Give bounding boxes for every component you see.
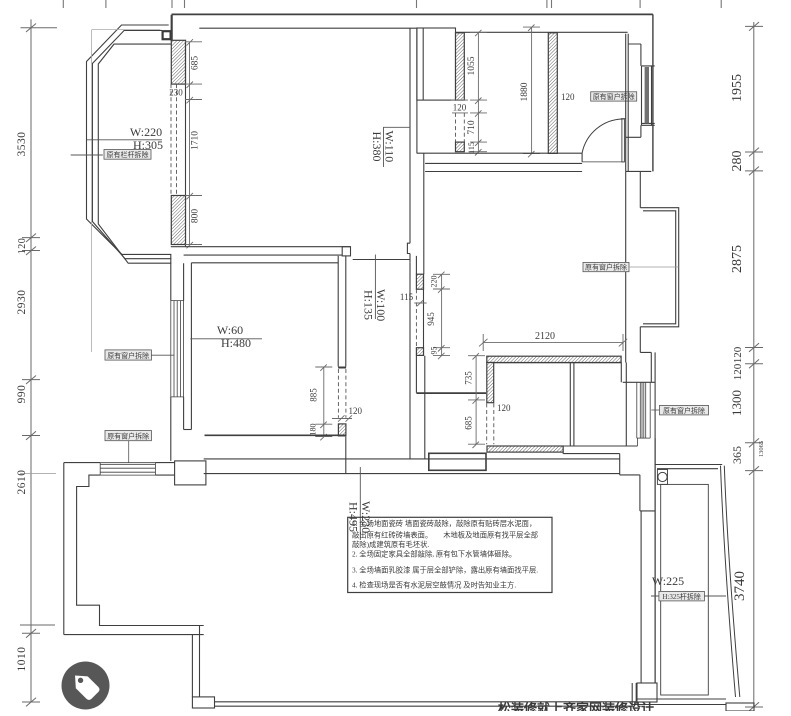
svg-text:800: 800 xyxy=(191,209,201,224)
svg-text:1055: 1055 xyxy=(467,56,477,75)
svg-text:120: 120 xyxy=(453,103,467,113)
svg-text:115: 115 xyxy=(400,292,414,302)
svg-text:H:380: H:380 xyxy=(370,132,384,162)
svg-text:120: 120 xyxy=(732,346,744,363)
svg-text:885: 885 xyxy=(309,388,319,402)
svg-text:H:325杆拆除: H:325杆拆除 xyxy=(662,592,701,601)
svg-text:365: 365 xyxy=(730,446,744,464)
svg-text:2930: 2930 xyxy=(16,290,28,315)
svg-text:1710: 1710 xyxy=(191,131,201,150)
svg-text:2. 全场固定家具全部敲除, 原有包下水管墙体砸除。: 2. 全场固定家具全部敲除, 原有包下水管墙体砸除。 xyxy=(352,550,516,559)
svg-text:敲除)成建筑原有毛坯状.: 敲除)成建筑原有毛坯状. xyxy=(352,540,429,549)
svg-text:220: 220 xyxy=(430,276,439,288)
svg-text:120: 120 xyxy=(732,363,744,380)
svg-text:735: 735 xyxy=(464,371,474,385)
svg-text:原有窗户拆除: 原有窗户拆除 xyxy=(107,431,149,440)
svg-text:原有窗户拆除: 原有窗户拆除 xyxy=(663,406,705,415)
svg-text:990: 990 xyxy=(16,385,28,404)
svg-text:H:480: H:480 xyxy=(221,336,251,350)
svg-text:280: 280 xyxy=(730,151,745,172)
svg-text:4. 检查现场是否有水泥层空鼓情况 及时告知业主方.: 4. 检查现场是否有水泥层空鼓情况 及时告知业主方. xyxy=(352,581,516,590)
svg-text:230: 230 xyxy=(169,88,183,98)
svg-text:W:220: W:220 xyxy=(130,125,162,139)
svg-text:120: 120 xyxy=(561,92,575,102)
svg-text:685: 685 xyxy=(191,56,201,71)
svg-text:180: 180 xyxy=(309,424,318,436)
svg-text:710: 710 xyxy=(467,120,477,135)
svg-text:2610: 2610 xyxy=(16,470,28,495)
svg-text:13065: 13065 xyxy=(758,441,765,457)
svg-text:120: 120 xyxy=(349,406,363,416)
svg-text:原有栏杆拆除: 原有栏杆拆除 xyxy=(107,150,149,159)
svg-text:2120: 2120 xyxy=(535,331,555,342)
svg-text:W:60: W:60 xyxy=(217,323,243,337)
svg-text:原有窗户拆除: 原有窗户拆除 xyxy=(585,263,627,272)
svg-text:1300: 1300 xyxy=(729,390,744,416)
svg-text:2875: 2875 xyxy=(730,245,745,273)
svg-text:H:135: H:135 xyxy=(362,290,376,320)
svg-text:3. 全场墙面乳胶漆 属于层全部铲除，露出原有墙面找平层.: 3. 全场墙面乳胶漆 属于层全部铲除，露出原有墙面找平层. xyxy=(352,566,538,575)
svg-text:1880: 1880 xyxy=(520,82,530,101)
svg-text:3530: 3530 xyxy=(16,132,28,157)
svg-text:1955: 1955 xyxy=(730,74,745,102)
svg-text:W:225: W:225 xyxy=(652,574,684,588)
svg-text:敲出原有红砖砖墙表面。 木地板及地面原有找平层全部: 敲出原有红砖砖墙表面。 木地板及地面原有找平层全部 xyxy=(352,531,538,540)
svg-text:松装修就上齐家网装修设计: 松装修就上齐家网装修设计 xyxy=(498,701,654,711)
svg-text:120: 120 xyxy=(497,403,511,413)
svg-text:685: 685 xyxy=(464,416,474,430)
svg-text:3740: 3740 xyxy=(732,571,748,601)
svg-text:95: 95 xyxy=(430,347,439,355)
svg-text:1. 全场地面瓷砖 墙面瓷砖敲除，敲除原有贴砖层水泥面，: 1. 全场地面瓷砖 墙面瓷砖敲除，敲除原有贴砖层水泥面， xyxy=(352,519,536,528)
svg-text:原有窗户拆除: 原有窗户拆除 xyxy=(107,351,149,360)
svg-text:120: 120 xyxy=(17,238,28,255)
svg-text:945: 945 xyxy=(426,312,436,326)
svg-text:115: 115 xyxy=(467,142,476,154)
svg-text:1010: 1010 xyxy=(16,647,28,672)
